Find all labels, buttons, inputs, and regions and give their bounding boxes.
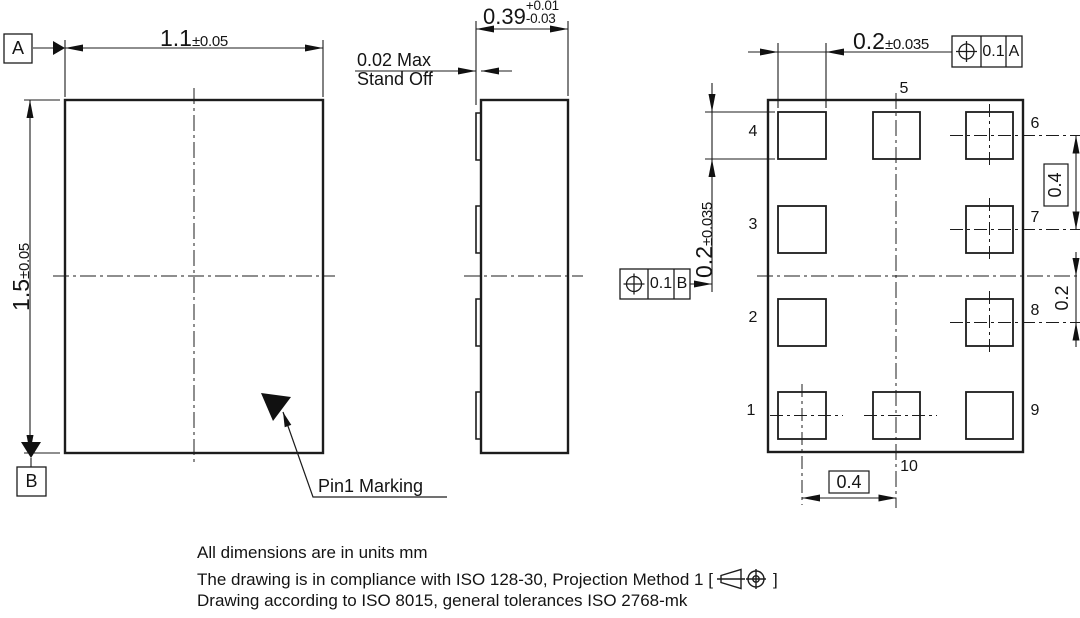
pitch-right-text: 0.4 [1046,165,1066,205]
pin-number-2: 2 [742,309,764,327]
edge-offset-dimension-lines [1073,252,1080,347]
pad-4 [778,112,826,159]
pad-height-tolerance: ±0.035 [700,202,716,246]
notes-line-1: All dimensions are in units mm [197,543,428,562]
thickness-tol-minus: -0.03 [526,13,559,26]
bottom-view [757,93,1080,508]
width-value: 1.1 [160,27,192,50]
front-view [53,88,447,497]
width-dimension-text: 1.1±0.05 [160,27,228,50]
pad-2 [778,299,826,346]
package-outline-drawing: A B 1.1±0.05 1.5±0.05 0.39 +0.01 -0.03 0… [0,0,1080,618]
height-tolerance: ±0.05 [17,243,33,279]
standoff-label: 0.02 Max Stand Off [357,51,433,89]
datum-b-triangle [21,442,41,458]
pad-width-dimension-text: 0.2±0.035 [853,30,929,53]
pin-number-5: 5 [893,80,915,98]
pin-number-3: 3 [742,216,764,234]
pin-number-7: 7 [1024,209,1046,227]
datum-a-triangle [53,41,65,55]
pin1-marking-triangle [261,393,291,421]
pitch-bottom-text: 0.4 [829,471,869,493]
pin1-marking-leader-arrow [283,412,291,427]
thickness-value: 0.39 [483,0,526,28]
standoff-line2: Stand Off [357,70,433,89]
width-tolerance: ±0.05 [192,34,228,50]
notes-line-2-text: The drawing is in compliance with ISO 12… [197,570,713,589]
height-dimension-text: 1.5±0.05 [7,222,33,332]
datum-b-label: B [17,467,46,496]
thickness-dimension-lines [476,21,568,105]
pin1-marking-label: Pin1 Marking [318,477,423,496]
pin-number-1: 1 [740,402,762,420]
pad-9 [966,392,1013,439]
thickness-dimension-text: 0.39 +0.01 -0.03 [483,0,559,28]
pin-number-6: 6 [1024,115,1046,133]
notes-line-2: The drawing is in compliance with ISO 12… [197,566,778,592]
pad-height-value: 0.2 [693,246,716,278]
position-symbol-icon [624,274,645,295]
pin-number-10: 10 [898,458,920,476]
pad-width-tolerance: ±0.035 [885,37,929,53]
pad-height-dimension-text: 0.2±0.035 [690,181,716,299]
drawing-linework [0,0,1080,618]
height-value: 1.5 [10,279,33,311]
edge-offset-text: 0.2 [1053,278,1073,318]
notes-line-3: Drawing according to ISO 8015, general t… [197,591,687,610]
datum-a-label: A [4,34,32,63]
pin-number-9: 9 [1024,402,1046,420]
fcf-a-tolerance: 0.1 [981,36,1006,67]
pad-width-value: 0.2 [853,30,885,53]
fcf-a-datum: A [1006,36,1022,67]
pin-number-8: 8 [1024,302,1046,320]
pin-number-4: 4 [742,123,764,141]
position-symbol-icon [956,41,977,62]
fcf-b-datum: B [674,269,690,299]
projection-method-1-icon [715,566,771,592]
notes-line-2-bracket: ] [773,570,778,589]
side-view [464,100,583,453]
fcf-b-tolerance: 0.1 [648,269,674,299]
pad-3 [778,206,826,253]
standoff-line1: 0.02 Max [357,51,433,70]
